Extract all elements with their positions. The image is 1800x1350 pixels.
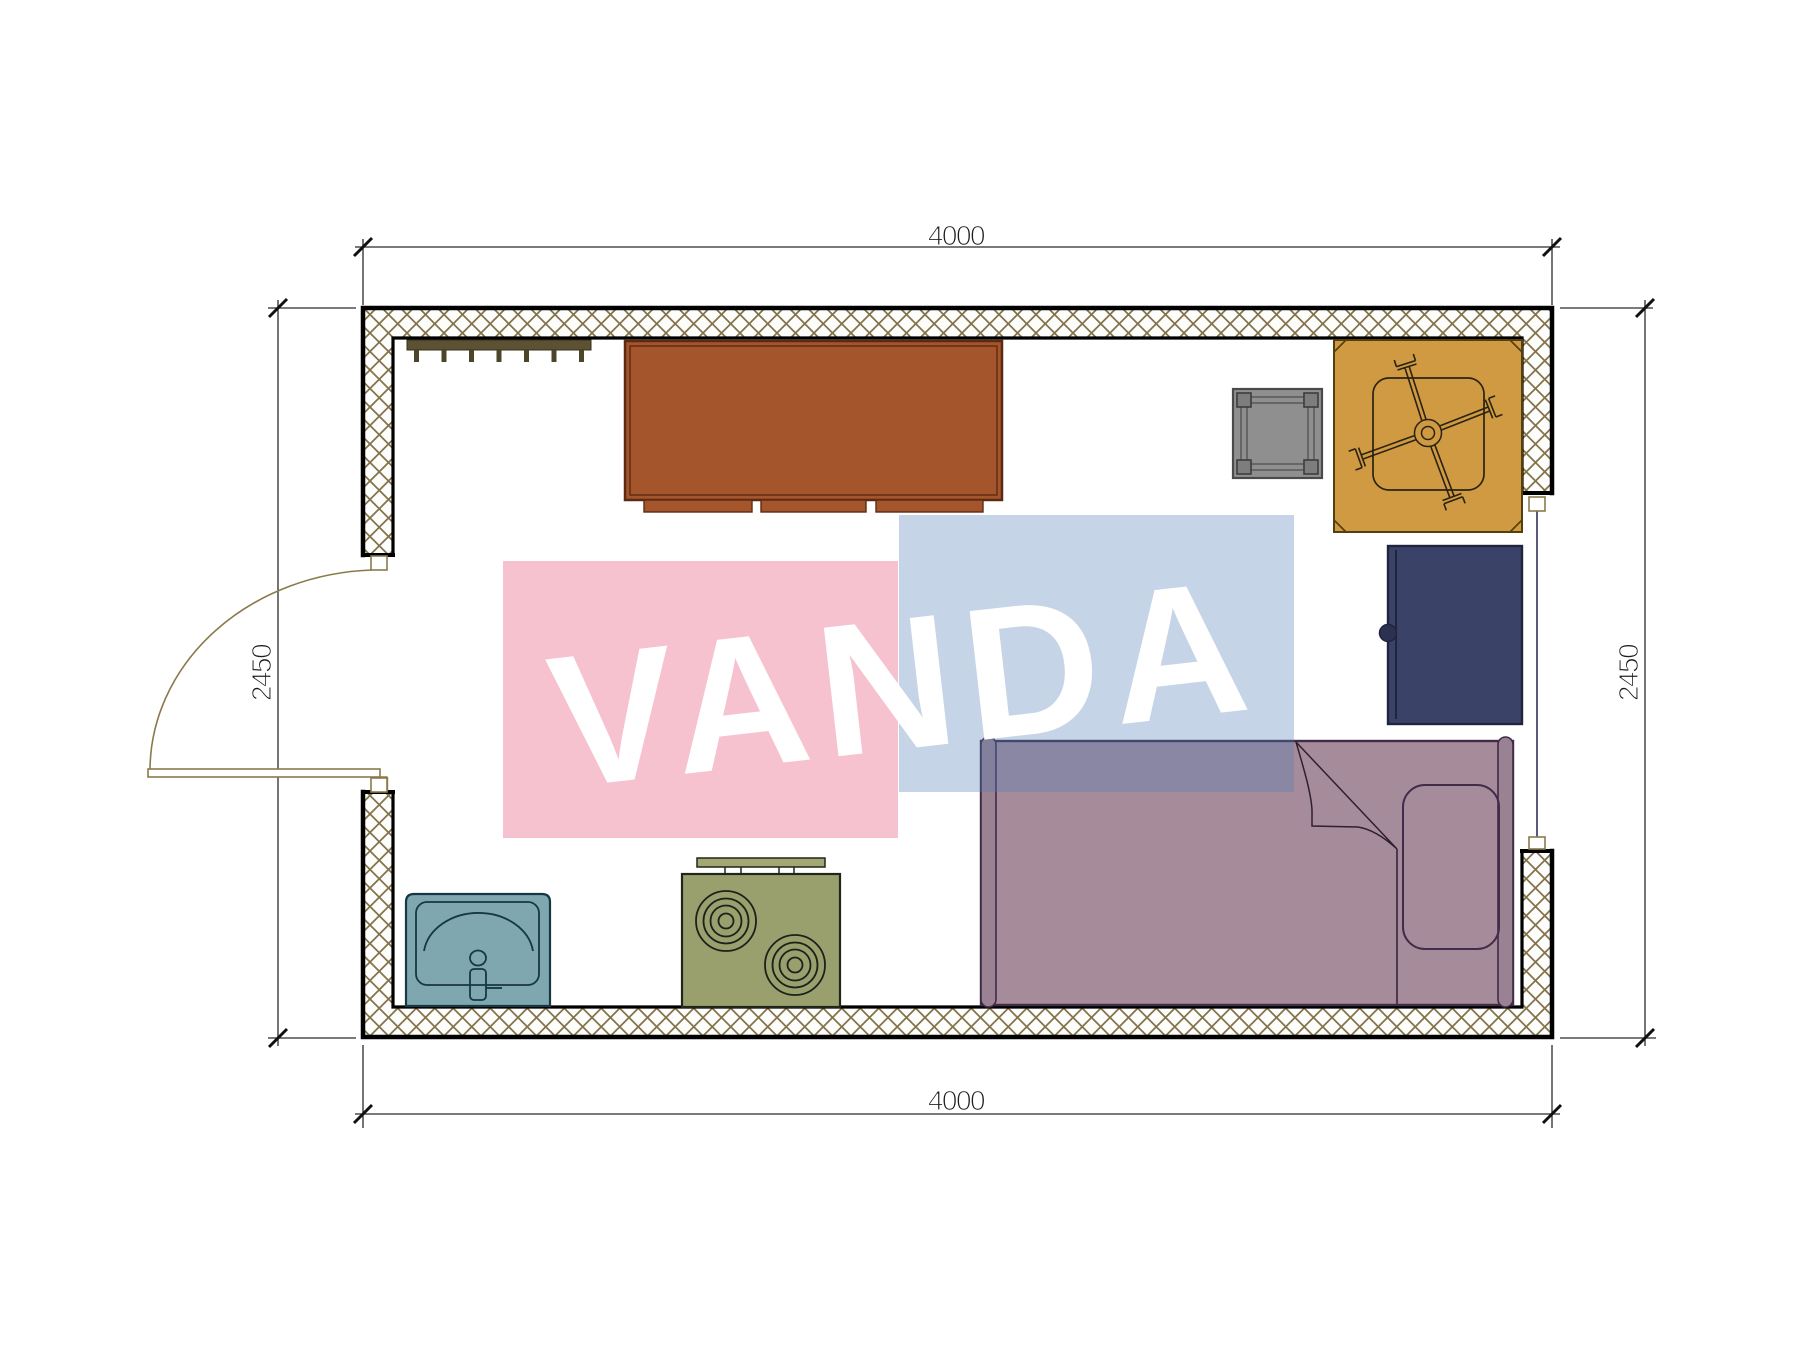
- svg-text:4000: 4000: [928, 1085, 985, 1116]
- svg-text:2450: 2450: [246, 644, 277, 701]
- svg-text:2450: 2450: [1613, 644, 1644, 701]
- svg-text:4000: 4000: [928, 220, 985, 251]
